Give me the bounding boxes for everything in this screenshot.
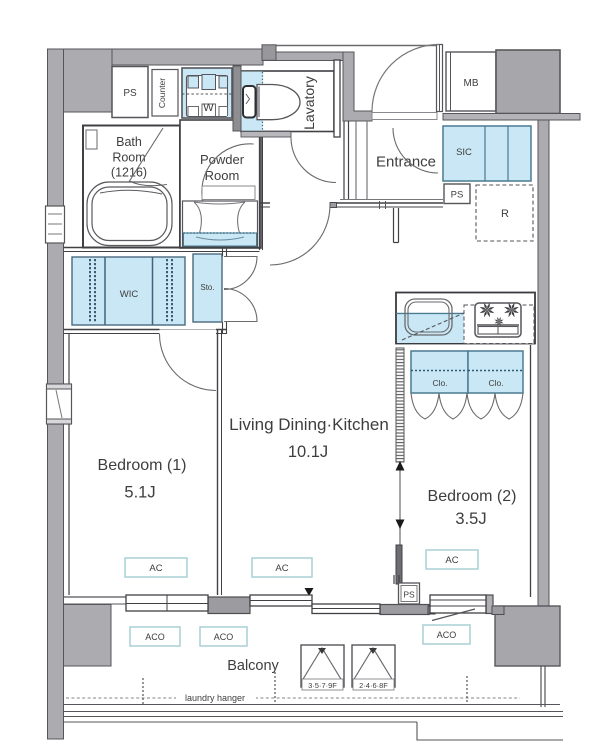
svg-text:ACO: ACO bbox=[145, 632, 165, 642]
svg-text:Entrance: Entrance bbox=[376, 154, 436, 171]
svg-text:(1216): (1216) bbox=[111, 166, 147, 180]
svg-text:AC: AC bbox=[445, 555, 458, 566]
svg-text:ACO: ACO bbox=[214, 632, 234, 642]
svg-text:AC: AC bbox=[275, 563, 288, 574]
svg-text:3.5J: 3.5J bbox=[455, 510, 486, 528]
svg-text:Bath: Bath bbox=[116, 135, 142, 149]
svg-text:R: R bbox=[501, 208, 509, 220]
svg-text:PS: PS bbox=[451, 190, 464, 201]
svg-text:Bedroom (1): Bedroom (1) bbox=[98, 457, 187, 474]
svg-text:Clo.: Clo. bbox=[488, 378, 503, 388]
svg-text:Living Dining·Kitchen: Living Dining·Kitchen bbox=[229, 415, 389, 434]
svg-text:Balcony: Balcony bbox=[227, 658, 279, 674]
svg-text:Clo.: Clo. bbox=[432, 378, 447, 388]
svg-text:PS: PS bbox=[123, 88, 137, 99]
svg-text:AC: AC bbox=[149, 563, 162, 574]
svg-text:3·5·7·9F: 3·5·7·9F bbox=[308, 681, 337, 690]
svg-text:Sto.: Sto. bbox=[200, 283, 214, 292]
svg-text:Lavatory: Lavatory bbox=[301, 76, 317, 130]
svg-text:2·4·6·8F: 2·4·6·8F bbox=[359, 681, 388, 690]
svg-text:Counter: Counter bbox=[157, 78, 167, 108]
svg-text:laundry hanger: laundry hanger bbox=[185, 693, 245, 703]
svg-text:10.1J: 10.1J bbox=[288, 443, 328, 461]
svg-text:W: W bbox=[203, 102, 214, 114]
svg-text:WIC: WIC bbox=[120, 289, 139, 300]
svg-text:Powder: Powder bbox=[200, 152, 245, 167]
svg-text:5.1J: 5.1J bbox=[124, 484, 155, 502]
svg-text:SIC: SIC bbox=[456, 147, 472, 158]
svg-text:PS: PS bbox=[403, 590, 415, 600]
svg-text:MB: MB bbox=[464, 78, 479, 89]
svg-text:Room: Room bbox=[205, 168, 240, 183]
svg-text:ACO: ACO bbox=[437, 630, 457, 640]
svg-text:Bedroom (2): Bedroom (2) bbox=[428, 488, 517, 505]
